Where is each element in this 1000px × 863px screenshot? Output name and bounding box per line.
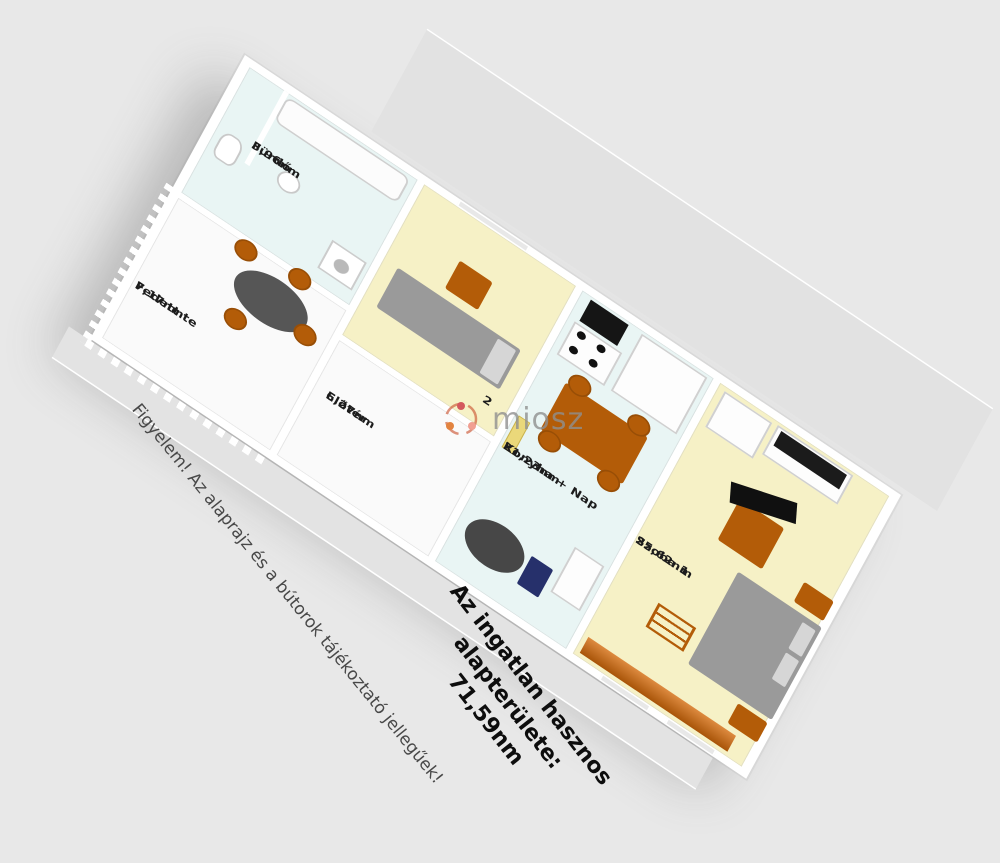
watermark-text: miosz <box>492 402 584 437</box>
watermark: miosz <box>438 396 584 442</box>
floorplan-stage: Szoba 1 25,62nm Konyha + Nap 21,23nm Elő… <box>0 0 1000 863</box>
miosz-logo-icon <box>438 396 484 442</box>
